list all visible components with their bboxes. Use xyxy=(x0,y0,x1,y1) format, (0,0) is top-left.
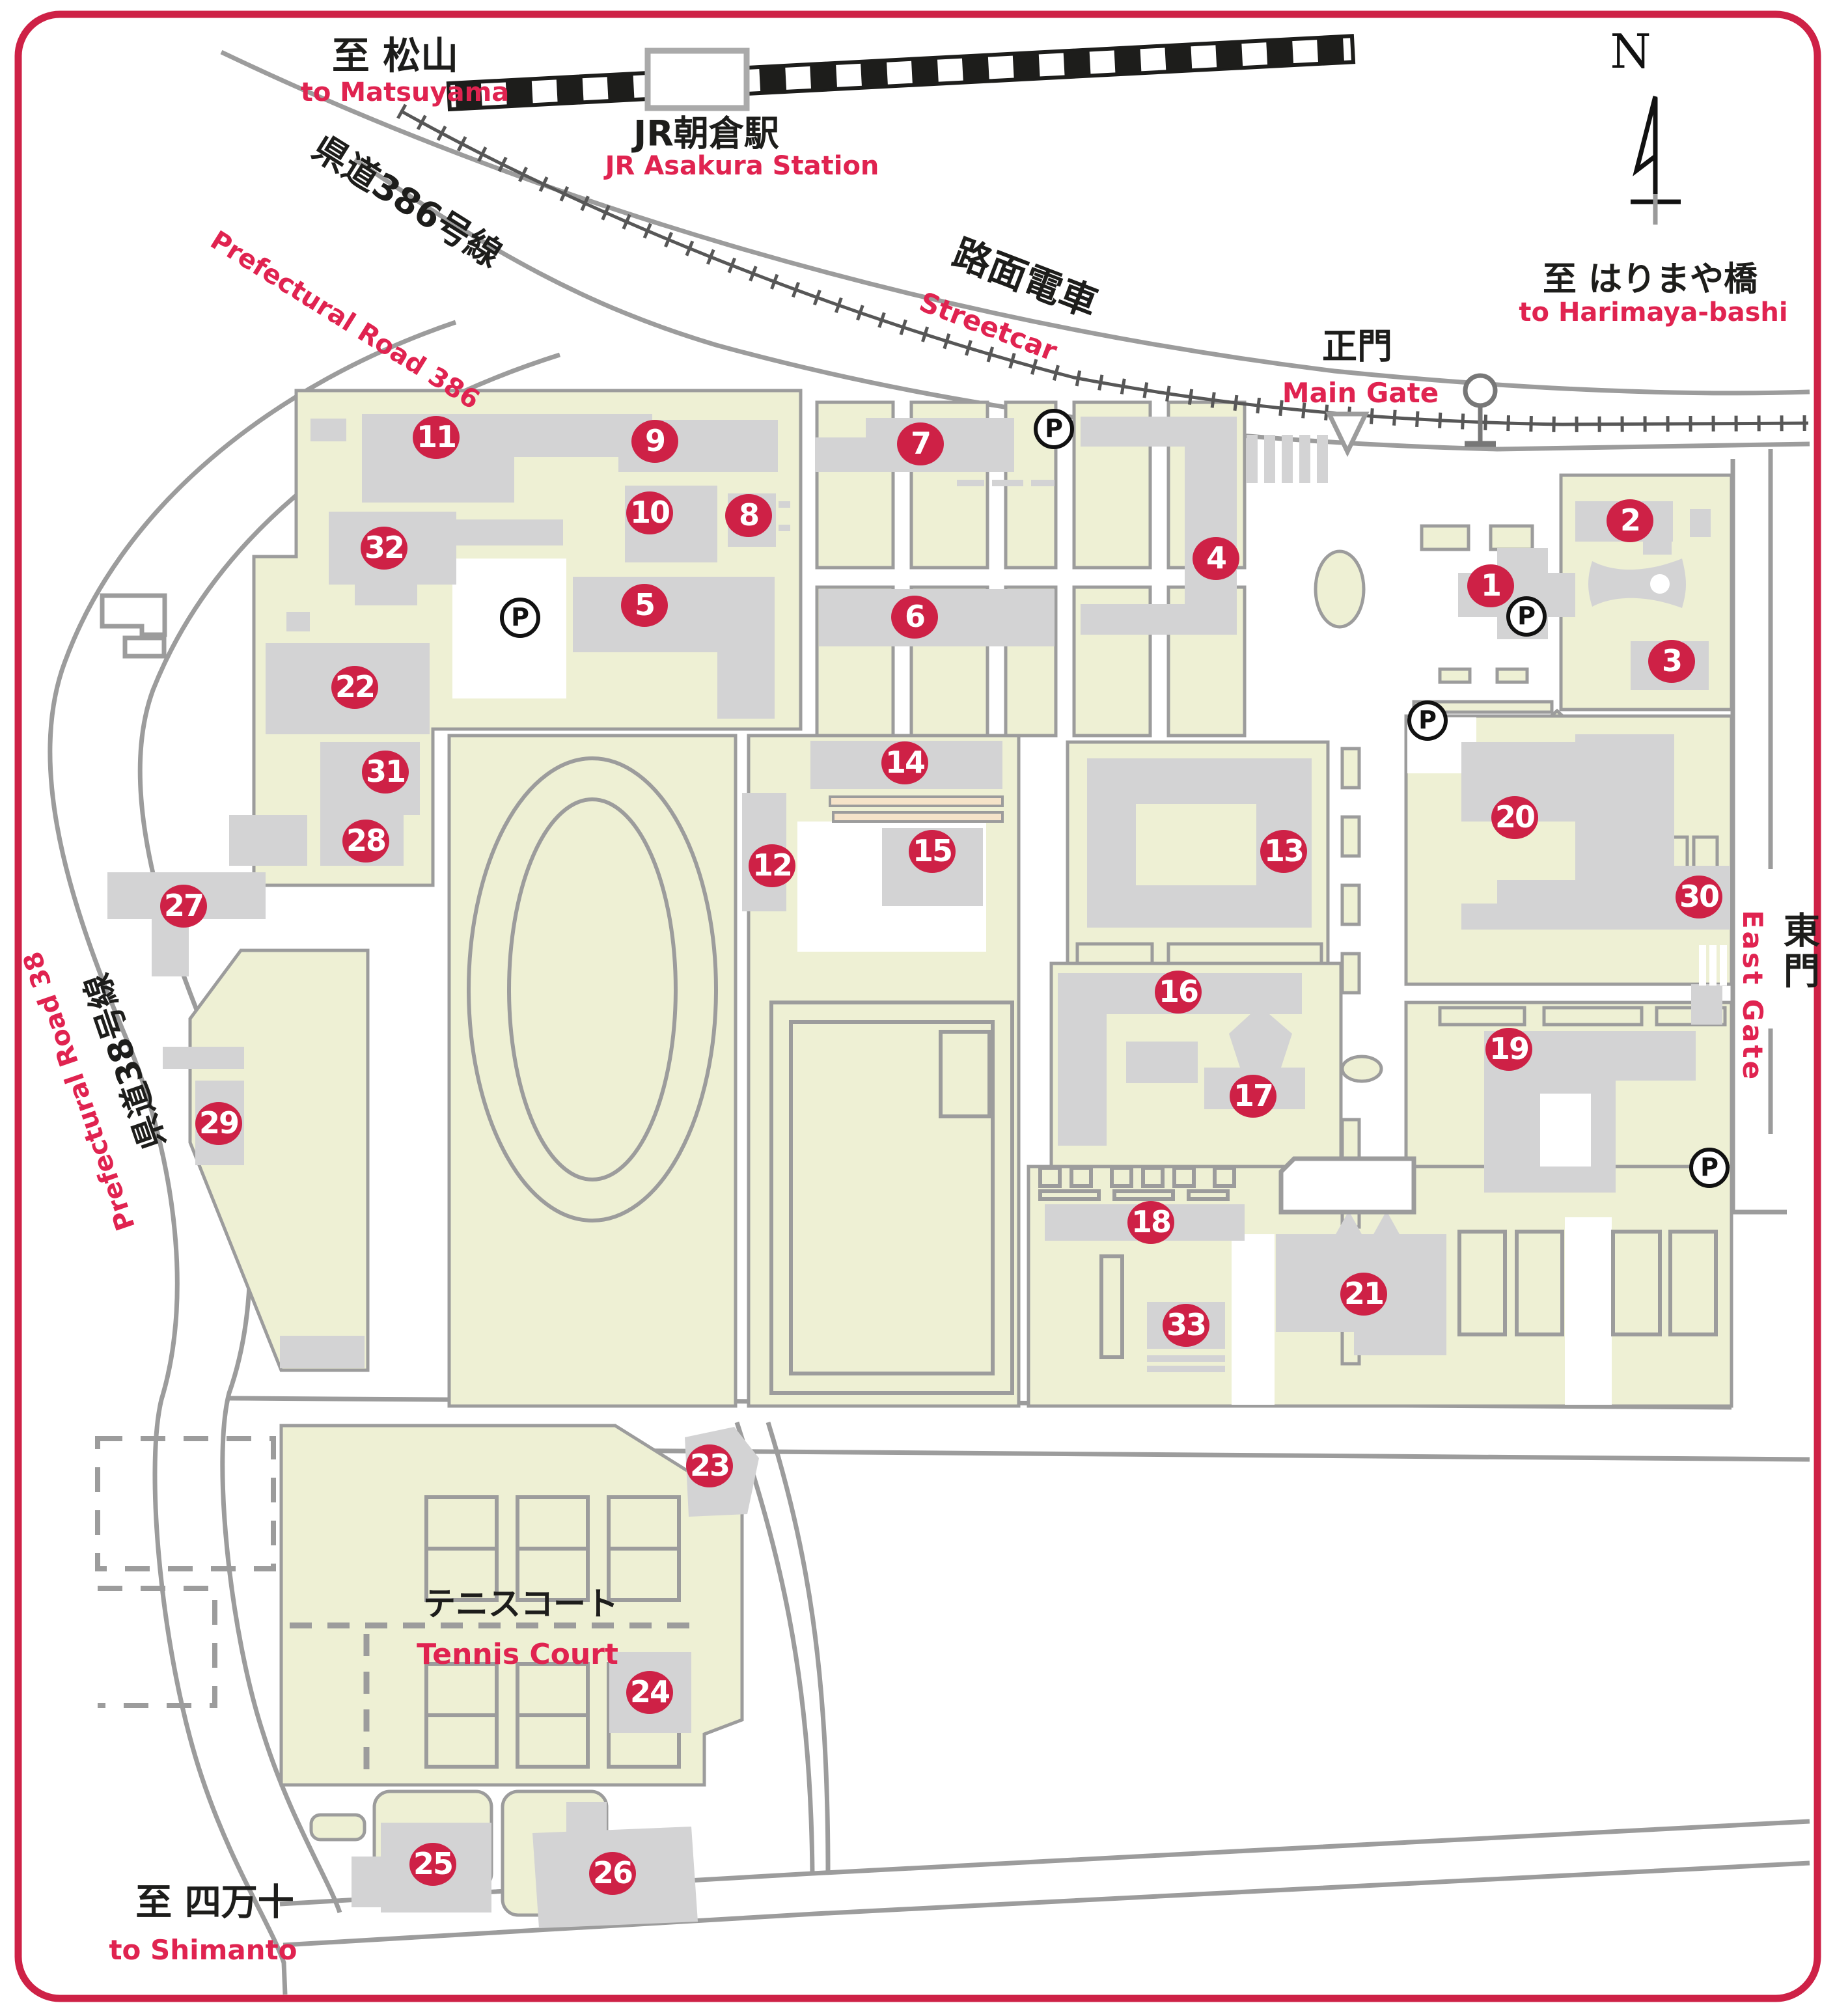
building-marker-6: 6 xyxy=(891,596,938,639)
building-marker-5: 5 xyxy=(621,584,668,627)
campus-map: 至 松山 to Matsuyama JR朝倉駅 JR Asakura Stati… xyxy=(0,0,1835,2016)
building-marker-3: 3 xyxy=(1648,640,1695,683)
parking-icon-3: P xyxy=(1506,596,1547,637)
building-marker-16: 16 xyxy=(1155,971,1202,1014)
marker-layer: 1234567891011121314151617181920212223242… xyxy=(0,0,1835,2016)
parking-icon-5: P xyxy=(1689,1148,1730,1188)
building-marker-18: 18 xyxy=(1127,1201,1174,1244)
building-marker-23: 23 xyxy=(686,1444,733,1487)
building-marker-8: 8 xyxy=(725,494,772,537)
building-marker-11: 11 xyxy=(413,416,460,459)
building-marker-31: 31 xyxy=(362,751,409,794)
building-marker-25: 25 xyxy=(409,1843,456,1886)
building-marker-4: 4 xyxy=(1193,537,1239,580)
building-marker-27: 27 xyxy=(160,885,207,928)
building-marker-20: 20 xyxy=(1491,796,1538,839)
building-marker-13: 13 xyxy=(1260,830,1307,873)
building-marker-22: 22 xyxy=(331,666,378,709)
building-marker-2: 2 xyxy=(1607,499,1653,542)
building-marker-7: 7 xyxy=(897,422,944,465)
building-marker-9: 9 xyxy=(631,420,678,463)
building-marker-26: 26 xyxy=(589,1852,636,1895)
building-marker-30: 30 xyxy=(1676,876,1722,918)
building-marker-24: 24 xyxy=(626,1671,673,1714)
building-marker-17: 17 xyxy=(1230,1075,1276,1118)
building-marker-12: 12 xyxy=(749,844,795,887)
building-marker-32: 32 xyxy=(361,527,407,570)
building-marker-33: 33 xyxy=(1163,1304,1209,1347)
building-marker-19: 19 xyxy=(1485,1028,1532,1071)
building-marker-29: 29 xyxy=(195,1102,242,1145)
building-marker-1: 1 xyxy=(1467,564,1514,607)
building-marker-15: 15 xyxy=(909,830,956,873)
parking-icon-4: P xyxy=(1407,700,1448,741)
building-marker-21: 21 xyxy=(1340,1273,1387,1316)
building-marker-28: 28 xyxy=(342,820,389,863)
parking-icon-1: P xyxy=(500,598,540,638)
building-marker-10: 10 xyxy=(626,491,673,534)
parking-icon-2: P xyxy=(1034,409,1074,449)
building-marker-14: 14 xyxy=(881,741,928,784)
